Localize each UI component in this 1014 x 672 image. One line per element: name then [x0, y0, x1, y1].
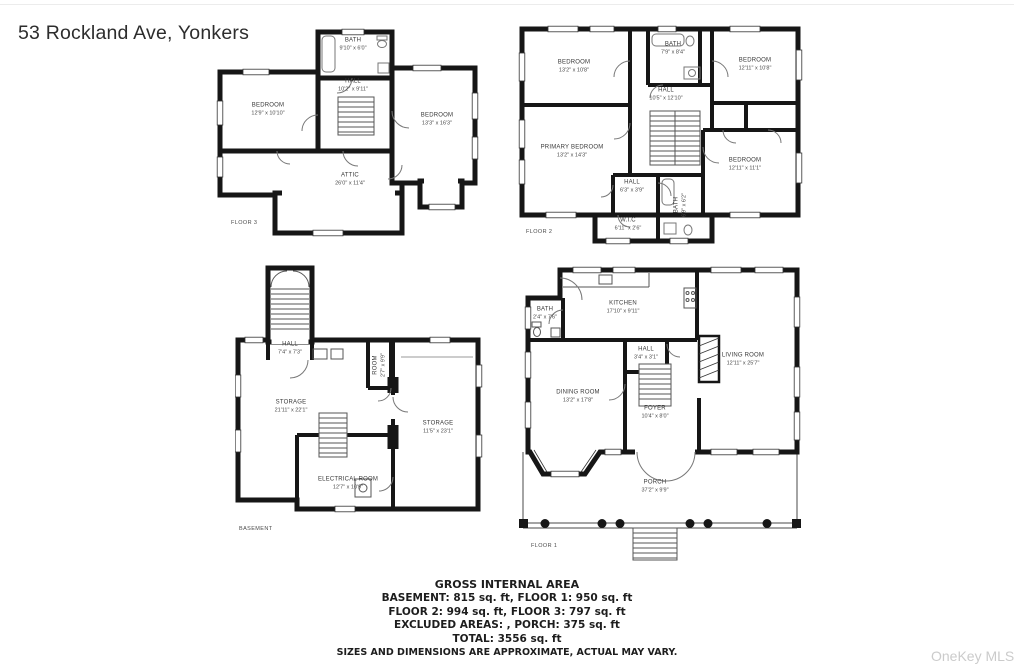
room-dims: 37'2" x 9'9" [641, 487, 668, 494]
room-name: KITCHEN [607, 301, 640, 309]
room-name: BEDROOM [729, 158, 761, 166]
room-dims: 2'4" x 7'6" [533, 314, 557, 321]
room-dims: 6'3" x 3'9" [620, 187, 644, 194]
room-label-foyer: FOYER 10'4" x 8'0" [641, 406, 668, 421]
room-dims: 9'10" x 6'0" [339, 45, 366, 52]
room-name: BATH [533, 307, 557, 315]
top-border-line [0, 4, 1014, 5]
fireplace [699, 336, 719, 382]
room-label-hall-small: HALL 6'3" x 3'9" [620, 180, 644, 195]
summary-line-floor2-floor3: FLOOR 2: 994 sq. ft, FLOOR 3: 797 sq. ft [0, 606, 1014, 620]
room-dims: 10'2" x 9'11" [338, 86, 368, 93]
summary-heading: GROSS INTERNAL AREA [0, 578, 1014, 592]
room-name: ELECTRICAL ROOM [318, 477, 378, 485]
room-label-wic: W.I.C 6'11" x 2'6" [615, 218, 642, 233]
room-label-hall: HALL 3'4" x 3'1" [634, 347, 658, 362]
floor1-tag: FLOOR 1 [531, 543, 557, 549]
floor3-drawing [215, 25, 480, 240]
room-label-storage-right: STORAGE 11'5" x 23'1" [423, 421, 454, 436]
room-label-bedroom-bottom-right: BEDROOM 12'11" x 11'1" [729, 158, 761, 173]
room-dims: 12'7" x 10'9" [318, 484, 378, 491]
room-label-bath: BATH 9'10" x 6'0" [339, 38, 366, 53]
area-summary: GROSS INTERNAL AREA BASEMENT: 815 sq. ft… [0, 578, 1014, 660]
room-dims: 10'5" x 12'10" [649, 95, 682, 102]
room-name: HALL [278, 342, 302, 350]
room-dims: 6'11" x 2'6" [615, 225, 642, 232]
room-name: HALL [634, 347, 658, 355]
room-dims: 13'2" x 10'8" [558, 67, 590, 74]
room-label-hall: HALL 10'2" x 9'11" [338, 79, 368, 94]
room-label-primary-bedroom: PRIMARY BEDROOM 13'2" x 14'3" [541, 145, 604, 160]
room-name: HALL [338, 79, 368, 87]
floor2-tag: FLOOR 2 [526, 229, 552, 235]
room-dims: 7'4" x 7'3" [278, 349, 302, 356]
room-name: STORAGE [423, 421, 454, 429]
room-dims: 17'10" x 9'11" [607, 308, 640, 315]
room-dims: 12'11" x 11'1" [729, 165, 761, 172]
room-name: BATH [339, 38, 366, 46]
room-name: BATH [674, 193, 682, 217]
room-dims: 10'4" x 8'0" [641, 413, 668, 420]
room-label-bedroom-left: BEDROOM 12'9" x 10'10" [251, 103, 284, 118]
room-label-living-room: LIVING ROOM 12'11" x 25'7" [722, 353, 764, 368]
room-name: PORCH [641, 480, 668, 488]
room-dims: 13'3" x 16'3" [421, 120, 453, 127]
room-label-electrical-room: ELECTRICAL ROOM 12'7" x 10'9" [318, 477, 378, 492]
room-name: DINING ROOM [556, 390, 600, 398]
room-name: BEDROOM [739, 58, 772, 66]
room-label-bath: BATH 2'4" x 7'6" [533, 307, 557, 322]
interior-stairs-icon [319, 413, 347, 457]
room-name: ATTIC [335, 173, 365, 181]
floor2-plan: BEDROOM 13'2" x 10'8" BATH 7'9" x 8'4" B… [518, 25, 803, 245]
front-steps [633, 528, 677, 560]
floor3-plan: BATH 9'10" x 6'0" HALL 10'2" x 9'11" BED… [215, 25, 480, 240]
room-name: HALL [649, 88, 682, 96]
basement-plan: HALL 7'4" x 7'3" ROOM 2'7" x 9'9" STORAG… [235, 265, 485, 545]
onekey-mls-watermark: OneKey MLS [931, 648, 1014, 664]
room-name: W.I.C [615, 218, 642, 226]
room-label-kitchen: KITCHEN 17'10" x 9'11" [607, 301, 640, 316]
room-label-attic: ATTIC 26'0" x 11'4" [335, 173, 365, 188]
basement-drawing [235, 265, 485, 545]
summary-line-total: TOTAL: 3556 sq. ft [0, 633, 1014, 647]
room-label-bedroom-top-left: BEDROOM 13'2" x 10'8" [558, 60, 590, 75]
room-dims: 13'2" x 17'8" [556, 397, 600, 404]
room-dims: 13'2" x 14'3" [541, 152, 604, 159]
floor3-tag: FLOOR 3 [231, 220, 257, 226]
room-label-bedroom-top-right: BEDROOM 12'11" x 10'8" [739, 58, 772, 73]
stairs-icon [639, 364, 671, 406]
room-label-bedroom-right: BEDROOM 13'3" x 16'3" [421, 113, 453, 128]
room-name: BEDROOM [421, 113, 453, 121]
room-label-porch: PORCH 37'2" x 9'9" [641, 480, 668, 495]
room-label-bath-bottom: BATH 6'9" x 6'2" [674, 193, 689, 217]
room-label-bath-top: BATH 7'9" x 8'4" [661, 42, 685, 57]
room-dims: 12'11" x 10'8" [739, 65, 772, 72]
room-dims: 6'9" x 6'2" [681, 193, 688, 217]
room-label-dining-room: DINING ROOM 13'2" x 17'8" [556, 390, 600, 405]
room-dims: 26'0" x 11'4" [335, 180, 365, 187]
basement-tag: BASEMENT [239, 526, 272, 532]
room-dims: 21'11" x 22'1" [275, 407, 308, 414]
stairs-icon [338, 97, 374, 135]
room-dims: 7'9" x 8'4" [661, 49, 685, 56]
porch-door-gap [635, 449, 695, 456]
room-name: BEDROOM [558, 60, 590, 68]
room-label-hall: HALL 10'5" x 12'10" [649, 88, 682, 103]
summary-line-excluded: EXCLUDED AREAS: , PORCH: 375 sq. ft [0, 619, 1014, 633]
floor1-plan: KITCHEN 17'10" x 9'11" BATH 2'4" x 7'6" … [515, 252, 805, 562]
room-dims: 3'4" x 3'1" [634, 354, 658, 361]
room-name: HALL [620, 180, 644, 188]
summary-line-basement-floor1: BASEMENT: 815 sq. ft, FLOOR 1: 950 sq. f… [0, 592, 1014, 606]
room-name: PRIMARY BEDROOM [541, 145, 604, 153]
room-label-storage-left: STORAGE 21'11" x 22'1" [275, 400, 308, 415]
room-name: BEDROOM [251, 103, 284, 111]
room-dims: 11'5" x 23'1" [423, 428, 454, 435]
room-name: LIVING ROOM [722, 353, 764, 361]
room-label-hall: HALL 7'4" x 7'3" [278, 342, 302, 357]
room-name: ROOM [373, 353, 381, 377]
room-dims: 12'11" x 25'7" [722, 360, 764, 367]
room-label-room: ROOM 2'7" x 9'9" [373, 353, 388, 377]
room-name: STORAGE [275, 400, 308, 408]
room-name: BATH [661, 42, 685, 50]
room-name: FOYER [641, 406, 668, 414]
room-dims: 2'7" x 9'9" [380, 353, 387, 377]
room-dims: 12'9" x 10'10" [251, 110, 284, 117]
stairs-icon [650, 111, 700, 165]
summary-disclaimer: SIZES AND DIMENSIONS ARE APPROXIMATE, AC… [0, 646, 1014, 660]
